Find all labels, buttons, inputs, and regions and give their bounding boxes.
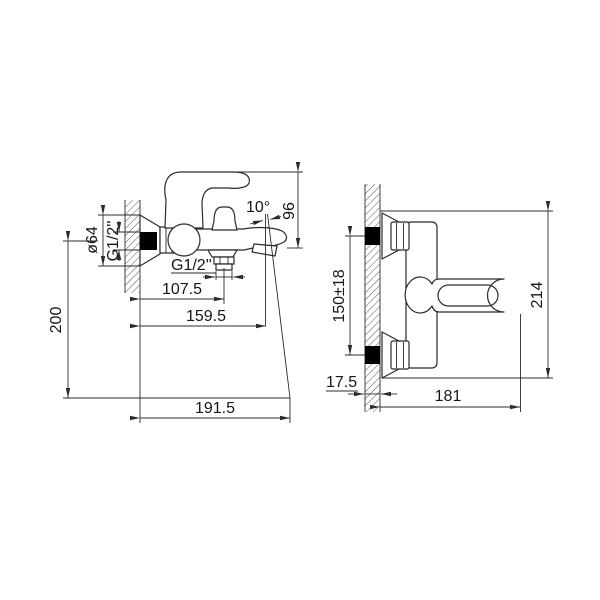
dim-wall-to-spout-end-label: 159.5: [186, 308, 226, 325]
dim-overall-depth-label: 191.5: [195, 400, 235, 417]
diverter-knob-side: [212, 207, 237, 230]
dim-spout-angle-label: 10°: [246, 199, 270, 216]
dim-escutcheon-diameter-label: ø64: [84, 226, 101, 254]
dim-overall-width-label: 181: [435, 388, 462, 405]
technical-drawing-faucet: ø64 G1/2'' 200 96 10°: [0, 0, 600, 600]
dim-wall-thread-label: G1/2'': [105, 221, 122, 262]
dim-wall-to-outlet-label: 107.5: [162, 281, 202, 298]
body-ball-side: [168, 224, 200, 256]
wall-fitting-top-front: [365, 227, 380, 245]
dim-inlet-centers-label: 150±18: [331, 269, 348, 322]
dim-wall-thickness-label: 17.5: [326, 374, 357, 391]
dim-spout-height-label: 96: [281, 202, 298, 220]
dim-overall-height-side-label: 200: [48, 307, 65, 334]
drawing-background: [0, 0, 600, 600]
wall-section-front: [365, 184, 380, 412]
wall-section-side: [125, 200, 140, 293]
dim-outlet-thread-label: G1/2'': [171, 257, 212, 274]
wall-fitting-bottom-front: [365, 346, 380, 364]
wall-fitting-side: [140, 232, 157, 250]
dim-overall-height-front-label: 214: [529, 282, 546, 309]
